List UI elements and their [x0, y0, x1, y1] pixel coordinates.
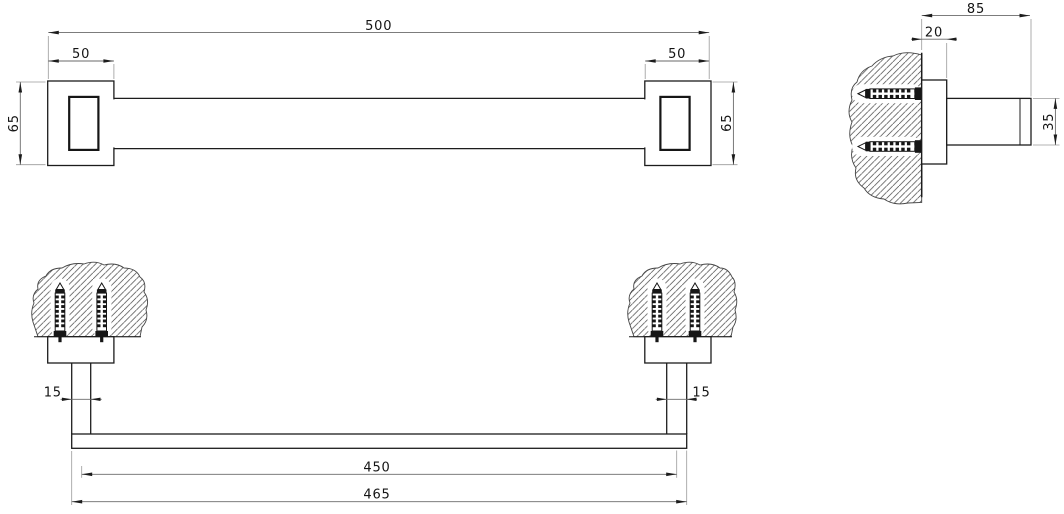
front-view: 500 50 50 65 65: [7, 19, 737, 166]
wall-anchor-icon: [689, 283, 702, 342]
dim-label-bar-outer-width: 465: [363, 487, 390, 502]
dim-35: 35: [1033, 98, 1060, 145]
dim-65-left: 65: [7, 82, 45, 165]
technical-drawing: 500 50 50 65 65: [0, 0, 1064, 514]
arrowhead: [947, 38, 957, 41]
bottom-left-plate: [48, 337, 114, 363]
side-view: 85 20 35: [849, 2, 1060, 204]
arrowhead: [91, 398, 101, 401]
arrowhead: [912, 38, 922, 41]
arrowhead: [62, 398, 72, 401]
wall-anchor-icon: [54, 283, 67, 342]
wall-section-hatch: [628, 262, 737, 336]
dim-15-right: 15: [656, 386, 711, 401]
wall-anchor-icon: [858, 140, 928, 153]
dim-label-bar-height: 35: [1042, 113, 1057, 131]
dim-label-left-bracket-height: 65: [7, 114, 22, 132]
dim-label-left-bracket-width: 50: [72, 47, 90, 62]
dim-label-left-stem-width: 15: [44, 386, 62, 401]
bottom-right-plate: [645, 337, 711, 363]
dim-465: 465: [72, 451, 687, 506]
dim-label-right-stem-width: 15: [692, 386, 710, 401]
bottom-bar: [72, 434, 687, 448]
dim-label-total-depth: 85: [967, 2, 985, 17]
side-bar-profile: [947, 98, 1031, 145]
side-mounting-plate: [922, 80, 947, 164]
dim-label-plate-thickness: 20: [925, 26, 943, 41]
wall-anchor-icon: [858, 87, 928, 100]
dim-label-right-bracket-width: 50: [668, 47, 686, 62]
front-right-collar: [660, 97, 689, 150]
dim-15-left: 15: [44, 386, 102, 401]
wall-anchor-icon: [95, 283, 108, 342]
dim-65-right: 65: [713, 82, 738, 165]
dim-label-right-bracket-height: 65: [720, 114, 735, 132]
dim-450: 450: [82, 451, 677, 478]
wall-anchor-icon: [651, 283, 664, 342]
front-left-collar: [69, 97, 98, 150]
hidden-line-mask: [108, 99, 650, 147]
dim-50-left: 50: [48, 47, 114, 79]
arrowhead: [657, 398, 667, 401]
wall-section-hatch: [32, 262, 148, 336]
wall-section-hatch: [849, 53, 922, 204]
bottom-view: 15 15 450 465: [32, 262, 737, 505]
drawing-canvas: 500 50 50 65 65: [0, 0, 1064, 514]
dim-500: 500: [48, 19, 709, 79]
dim-label-fixing-centres: 450: [363, 461, 390, 476]
dim-label-overall-width: 500: [365, 19, 392, 34]
dim-50-right: 50: [645, 47, 709, 79]
